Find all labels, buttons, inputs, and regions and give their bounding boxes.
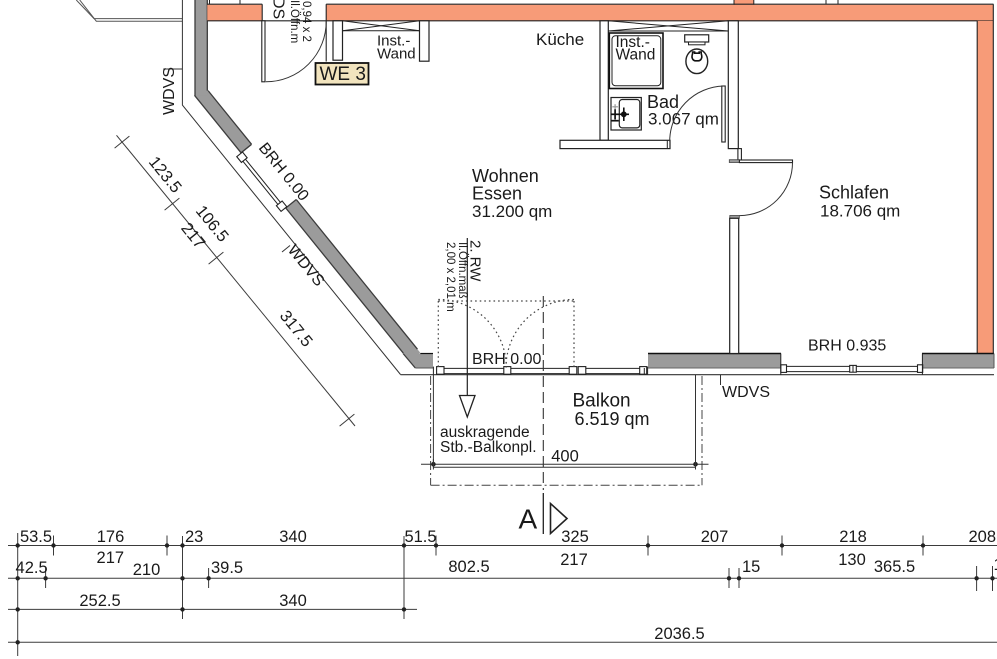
svg-text:23: 23: [185, 528, 203, 546]
svg-text:Küche: Küche: [536, 30, 584, 49]
svg-text:WDVS: WDVS: [161, 67, 178, 115]
svg-text:Schlafen: Schlafen: [819, 183, 889, 203]
svg-text:400: 400: [551, 448, 579, 466]
svg-text:2,00 x 2,01 m: 2,00 x 2,01 m: [444, 242, 456, 312]
svg-text:WDVS: WDVS: [722, 384, 770, 401]
svg-text:252.5: 252.5: [79, 592, 120, 610]
svg-text:15: 15: [742, 558, 760, 576]
svg-text:Il.Öffn.maß: Il.Öffn.maß: [456, 242, 468, 299]
svg-text:176: 176: [97, 528, 125, 546]
svg-text:340: 340: [279, 592, 307, 610]
svg-text:42.5: 42.5: [16, 559, 48, 577]
svg-text:BRH 0.00: BRH 0.00: [472, 351, 541, 368]
svg-text:217: 217: [97, 549, 125, 567]
svg-text:218: 218: [839, 528, 867, 546]
svg-text:Wand: Wand: [377, 46, 416, 63]
svg-text:802.5: 802.5: [448, 558, 489, 576]
svg-text:DS: DS: [270, 0, 287, 19]
svg-text:51.5: 51.5: [404, 528, 436, 546]
svg-text:325: 325: [561, 528, 589, 546]
svg-text:WE 3: WE 3: [320, 64, 366, 85]
svg-text:0,94 x 2: 0,94 x 2: [300, 1, 312, 42]
svg-text:Essen: Essen: [472, 184, 522, 204]
svg-text:13: 13: [994, 556, 997, 574]
svg-text:53.5: 53.5: [20, 528, 52, 546]
svg-text:Wand: Wand: [616, 47, 656, 64]
svg-text:130: 130: [838, 551, 866, 569]
svg-text:365.5: 365.5: [874, 558, 915, 576]
svg-text:210: 210: [133, 561, 161, 579]
svg-text:BRH 0.935: BRH 0.935: [808, 338, 886, 355]
svg-text:217: 217: [560, 551, 588, 569]
svg-text:3.067 qm: 3.067 qm: [648, 110, 719, 129]
svg-text:2. RW: 2. RW: [467, 240, 484, 282]
svg-text:6.519 qm: 6.519 qm: [575, 409, 650, 429]
svg-text:18.706 qm: 18.706 qm: [820, 202, 900, 221]
svg-text:2036.5: 2036.5: [654, 625, 704, 643]
svg-text:208: 208: [969, 528, 997, 546]
svg-text:207: 207: [701, 528, 729, 546]
svg-text:Il.Öffn.m: Il.Öffn.m: [288, 0, 300, 43]
svg-text:39.5: 39.5: [211, 559, 243, 577]
svg-text:340: 340: [279, 528, 307, 546]
svg-text:Stb.-Balkonpl.: Stb.-Balkonpl.: [440, 439, 537, 456]
svg-text:A: A: [519, 504, 538, 535]
svg-text:31.200 qm: 31.200 qm: [472, 202, 552, 221]
